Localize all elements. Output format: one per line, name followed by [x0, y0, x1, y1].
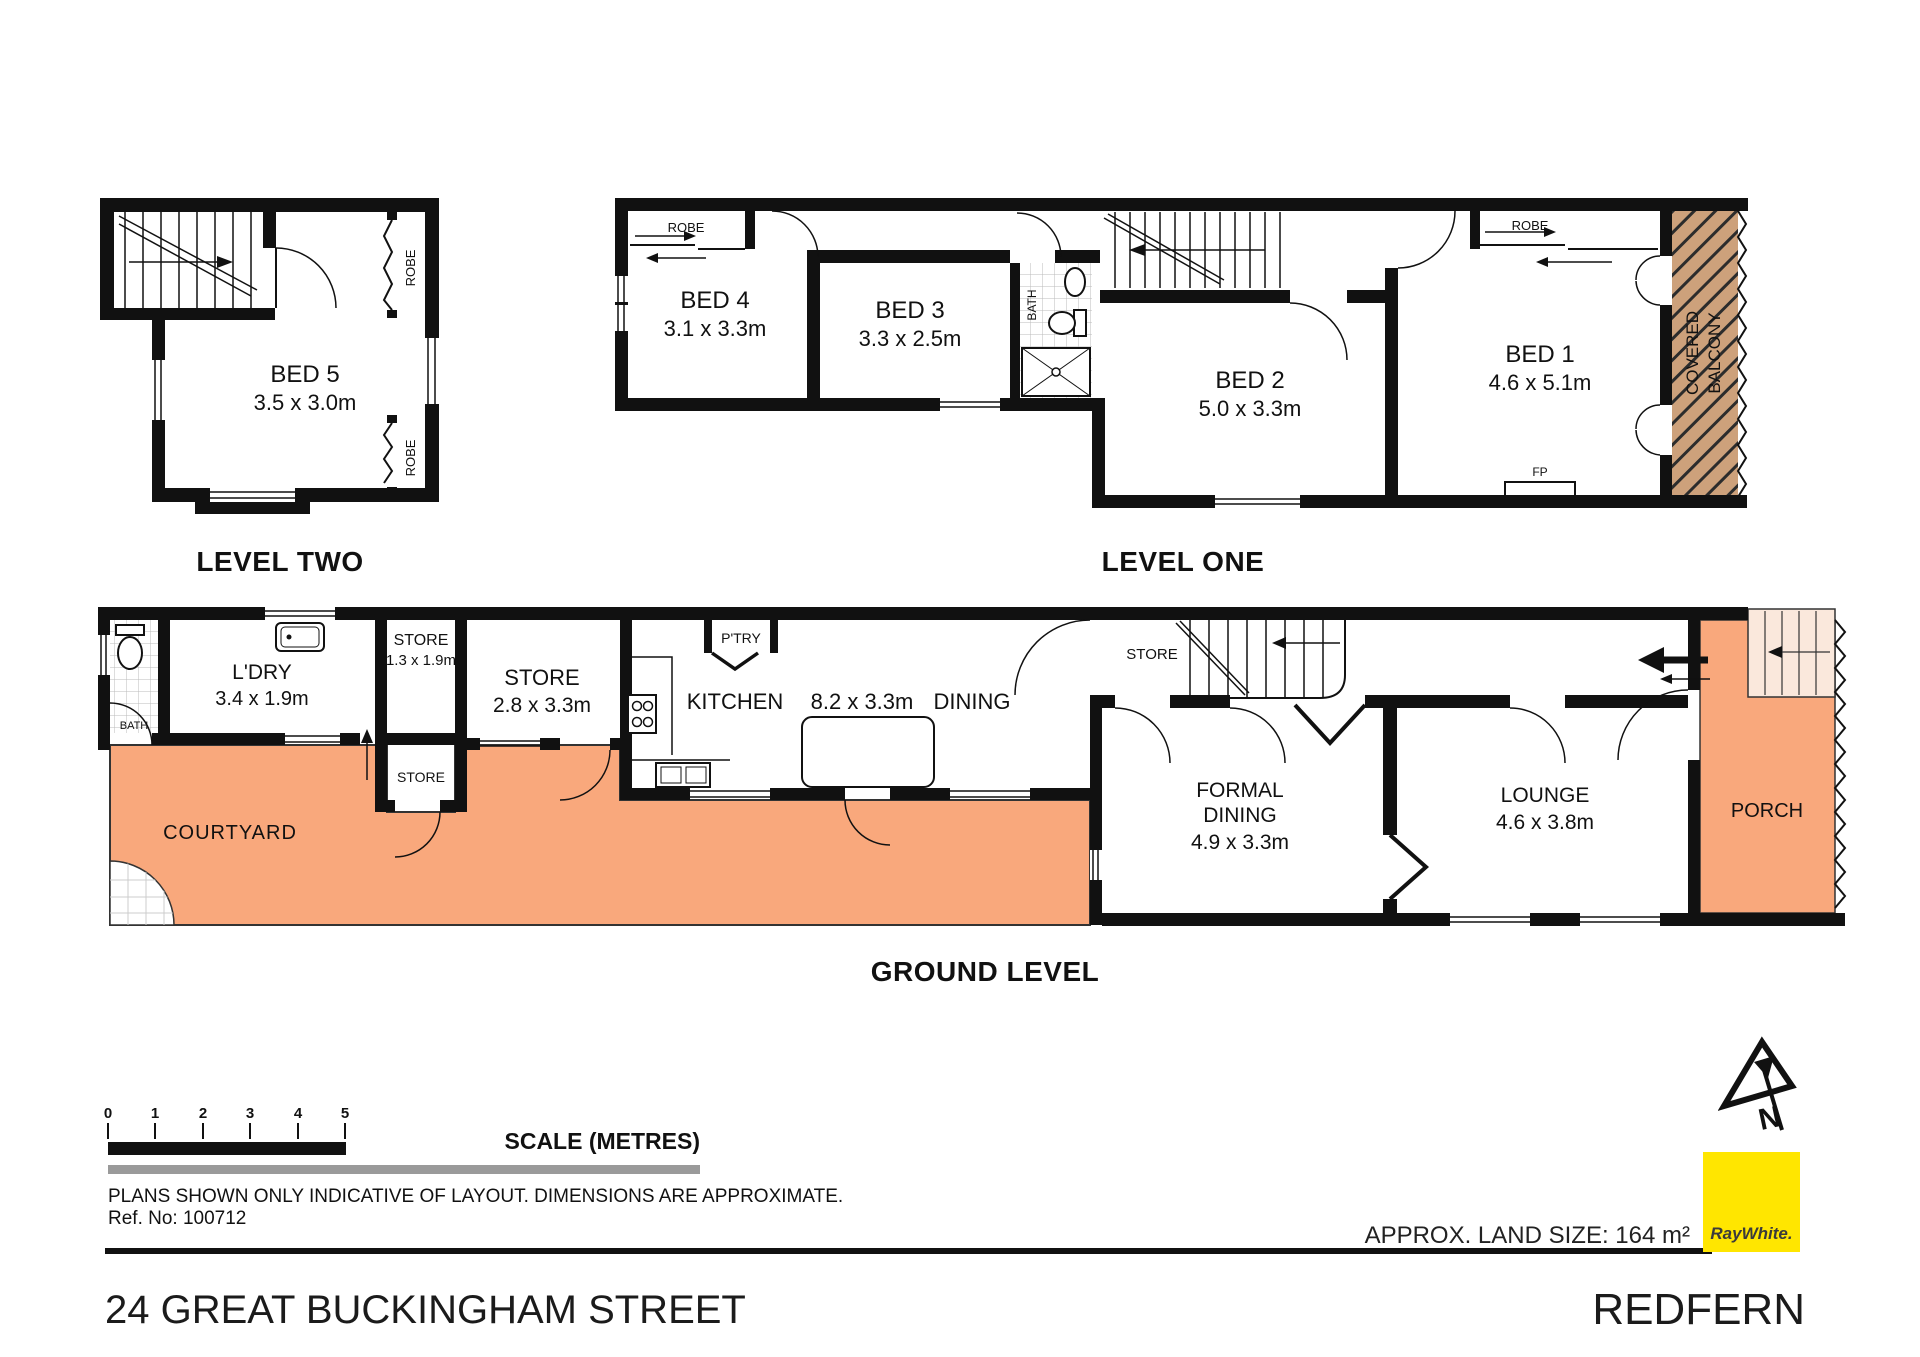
level-two-floorplan: ROBE ROBE BED 5 3.5 x 3.0m — [95, 190, 455, 520]
room-label-bed5: BED 5 — [270, 361, 339, 388]
porch-steps — [1748, 609, 1835, 697]
level-two-caption: LEVEL TWO — [130, 546, 430, 578]
balcony-label-2: BALCONY — [1705, 312, 1724, 393]
scale-tick-4: 4 — [294, 1105, 302, 1122]
level-one-floorplan: FP ROBE ROBE BATH — [610, 190, 1760, 530]
scale-bar-solid — [108, 1142, 346, 1155]
laundry-tub-icon — [276, 623, 324, 651]
level-one-caption: LEVEL ONE — [1033, 546, 1333, 578]
kitchen-sink-icon — [656, 763, 710, 787]
property-suburb: REDFERN — [1400, 1285, 1805, 1335]
toilet-tank-icon — [116, 625, 144, 635]
robe-doors — [384, 220, 392, 483]
robe-label: ROBE — [403, 439, 418, 476]
courtyard-label: COURTYARD — [163, 822, 297, 844]
room-label-bed2: BED 2 — [1215, 367, 1284, 394]
robe-label: ROBE — [1512, 218, 1549, 233]
room-dims-bed4: 3.1 x 3.3m — [664, 316, 767, 341]
scale-tick-1: 1 — [151, 1105, 159, 1122]
cooktop-icon — [628, 695, 656, 733]
ref-number: Ref. No: 100712 — [108, 1208, 246, 1230]
door-arc — [276, 248, 336, 308]
room-dims-lounge: 4.6 x 3.8m — [1496, 811, 1594, 834]
land-size-text: APPROX. LAND SIZE: 164 m² — [1190, 1222, 1690, 1250]
pantry-label: P'TRY — [721, 630, 761, 646]
arrow-icon — [1536, 257, 1548, 267]
stair-direction-arrow-icon — [1272, 637, 1286, 649]
porch-edge — [1835, 620, 1845, 908]
room-dims-bed3: 3.3 x 2.5m — [859, 326, 962, 351]
room-label-store-lower: STORE — [397, 769, 445, 785]
stair-direction-arrow-icon — [1129, 244, 1145, 256]
pantry-door — [712, 653, 758, 669]
fireplace-label: FP — [1532, 465, 1547, 479]
room-dims-bed5: 3.5 x 3.0m — [254, 390, 357, 415]
scale-tick-5: 5 — [341, 1105, 349, 1122]
room-label-bed4: BED 4 — [680, 287, 749, 314]
bed4-robe — [630, 245, 745, 249]
scale-tick-0: 0 — [104, 1105, 112, 1122]
room-label-bed3: BED 3 — [875, 297, 944, 324]
room-dims-bed1: 4.6 x 5.1m — [1489, 370, 1592, 395]
robe-label: ROBE — [668, 220, 705, 235]
level-one-walls — [615, 198, 1748, 508]
bath-fixtures — [116, 625, 144, 669]
scale-tick-2: 2 — [199, 1105, 207, 1122]
scale-gray-rule — [108, 1165, 700, 1174]
disclaimer-text: PLANS SHOWN ONLY INDICATIVE OF LAYOUT. D… — [108, 1186, 843, 1208]
property-address: 24 GREAT BUCKINGHAM STREET — [105, 1288, 746, 1333]
bifold-door — [1295, 705, 1365, 743]
room-label-ldry: L'DRY — [232, 661, 292, 684]
stair-direction-arrow-icon — [217, 256, 233, 268]
robe-slide-arrows — [635, 236, 706, 258]
ground-caption: GROUND LEVEL — [835, 956, 1135, 988]
room-label-kitchen: KITCHEN — [687, 689, 784, 714]
scale-title: SCALE (METRES) — [440, 1128, 700, 1155]
north-arrow-icon: N — [1718, 1036, 1802, 1140]
robe-slide-arrows — [1485, 232, 1612, 262]
porch-label: PORCH — [1731, 800, 1803, 822]
room-dims-ldry: 3.4 x 1.9m — [215, 688, 308, 710]
scale-tick-3: 3 — [246, 1105, 254, 1122]
room-label-store-stairs: STORE — [1126, 646, 1177, 663]
room-label-store-big: STORE — [504, 665, 579, 690]
room-label-formal-2: DINING — [1203, 804, 1277, 827]
basin-icon — [1065, 268, 1085, 296]
toilet-icon — [1049, 312, 1075, 334]
room-label-formal-1: FORMAL — [1196, 779, 1284, 802]
bed1-robe — [1475, 245, 1658, 249]
ground-floorplan: BATH L'DRY 3.4 x 1.9m STORE 1.3 x 1.9m S… — [90, 595, 1860, 940]
toilet-icon — [118, 637, 142, 669]
room-dims-formal: 4.9 x 3.3m — [1191, 831, 1289, 854]
balcony-label-1: COVERED — [1683, 311, 1702, 395]
balcony-edge — [1738, 211, 1746, 497]
bath-label: BATH — [1025, 289, 1039, 320]
room-dims-store-big: 2.8 x 3.3m — [493, 694, 591, 717]
room-label-dining: DINING — [934, 689, 1011, 714]
raywhite-logo-text: RayWhite. — [1703, 1224, 1800, 1244]
room-dims-store-small: 1.3 x 1.9m — [386, 652, 456, 669]
room-label-store-small: STORE — [394, 632, 449, 649]
arrow-icon — [646, 253, 658, 263]
room-dims-bed2: 5.0 x 3.3m — [1199, 396, 1302, 421]
north-letter: N — [1756, 1100, 1784, 1137]
robe-label: ROBE — [403, 249, 418, 286]
room-dims-kitchen: 8.2 x 3.3m — [811, 689, 914, 714]
raywhite-logo: RayWhite. — [1703, 1152, 1800, 1252]
room-label-bed1: BED 1 — [1505, 341, 1574, 368]
room-label-lounge: LOUNGE — [1501, 784, 1590, 807]
bifold-door — [1390, 835, 1426, 899]
bath-label: BATH — [120, 720, 149, 732]
fireplace — [1505, 482, 1575, 496]
ground-stairs — [1176, 620, 1345, 698]
level-two-stairs — [119, 212, 257, 308]
island-bench — [802, 717, 934, 787]
